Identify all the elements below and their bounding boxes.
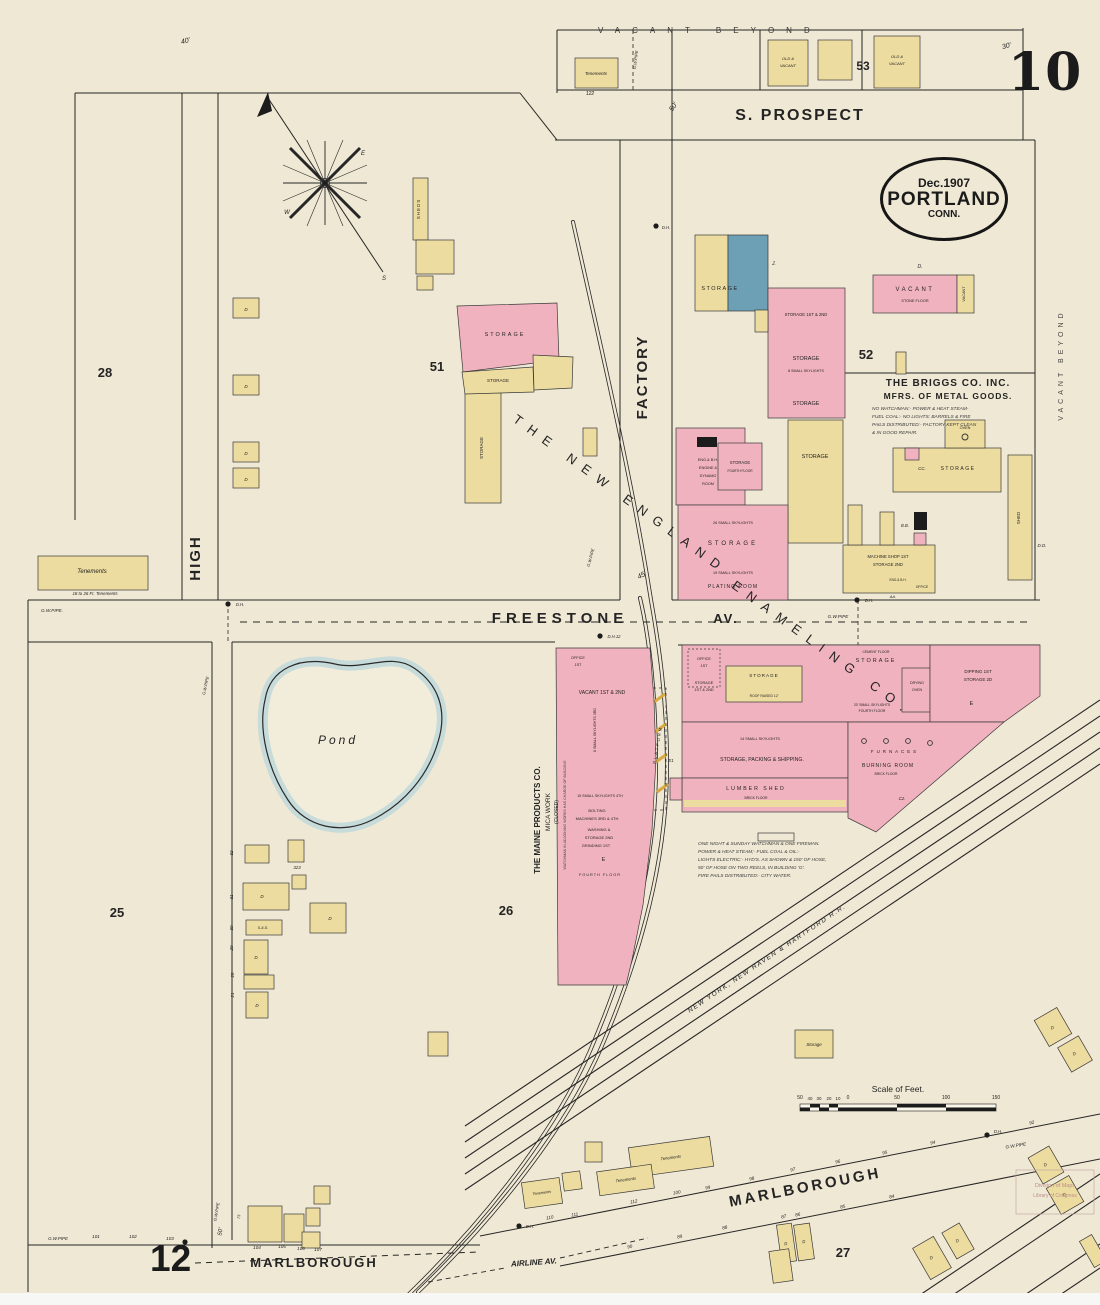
map-label: OFFICE (697, 657, 711, 661)
map-label: G.W.PIPE (828, 614, 850, 619)
company-name: THE MAINE PRODUCTS CO. (533, 766, 542, 874)
building (670, 778, 682, 800)
map-label: OVEN (912, 688, 923, 692)
sheet-number: 10 (1008, 42, 1082, 103)
map-label: ENG.& B.H. (698, 458, 718, 462)
map-label: 105 (278, 1244, 286, 1249)
building (838, 1108, 848, 1112)
hydrant-dot (516, 1223, 521, 1228)
library-stamp-line: Division of Maps (1035, 1183, 1076, 1189)
library-stamp-line: Library of Congress (1033, 1193, 1077, 1199)
map-label: 101 (92, 1234, 100, 1239)
map-label: STORAGE (802, 454, 829, 460)
map-label: STORAGE, PACKING & SHIPPING. (720, 757, 804, 763)
map-label: VACANT (896, 287, 935, 293)
building (288, 840, 304, 862)
block-number: 51 (430, 359, 444, 374)
map-label: STORAGE 2ND (873, 562, 903, 567)
hydrant-dot (323, 181, 326, 184)
map-label: 1ST (701, 664, 709, 668)
building (848, 505, 862, 545)
block-number: 52 (859, 347, 873, 362)
map-label: WATCHMAN IN ADJOINING WORKS HAS CHARGE O… (563, 760, 567, 869)
map-label: DIPPING 1ST (964, 669, 992, 674)
building (897, 1104, 946, 1108)
building (873, 275, 957, 313)
map-label: SHEDS (416, 199, 421, 220)
building (848, 1108, 897, 1112)
map-label: STORAGE (856, 658, 897, 664)
map-label: 21 (230, 992, 235, 998)
map-label: J. (771, 261, 776, 267)
map-label: STONE FLOOR (901, 299, 928, 303)
building (697, 437, 717, 447)
map-label: NO WATCHMAN:- POWER & HEAT STEAM- (872, 406, 969, 412)
building (905, 448, 919, 460)
map-label: CC. (918, 466, 926, 471)
map-label: ENGINE & (699, 466, 718, 470)
building (306, 1208, 320, 1226)
street-marlborough-west: MARLBOROUGH (250, 1255, 377, 1270)
publisher-stamp: Dec.1907 PORTLAND CONN. (880, 157, 1008, 241)
adjacent-sheet-number: 12 (150, 1238, 191, 1280)
map-label: LIGHTS ELECTRIC:- HYD'S. AS SHOWN & 150'… (698, 857, 826, 863)
map-label: STORAGE (487, 378, 509, 383)
map-label: 10 (836, 1096, 841, 1101)
building (914, 512, 927, 530)
map-label: 150 (992, 1095, 1001, 1101)
building (755, 310, 768, 332)
sanborn-map-sheet: S. PROSPECTFACTORYHIGHFREESTONEAV.MARLBO… (0, 0, 1100, 1305)
map-label: D. (918, 264, 923, 270)
map-label: D.H. (865, 598, 873, 603)
map-label: OVEN (960, 426, 971, 430)
pond-label: Pond (318, 733, 358, 747)
map-label: VACANT (962, 286, 966, 302)
map-label: STORAGE (695, 681, 714, 685)
map-label: 102 (129, 1234, 137, 1239)
building (829, 1104, 838, 1108)
map-label: ONE NIGHT & SUNDAY WATCHMAN & ONE FIREMA… (698, 841, 820, 847)
map-label: 323 (293, 865, 301, 870)
map-label: 20' SMALL SKYLIGHTS (854, 703, 891, 707)
map-label: 29 (229, 945, 234, 951)
building (243, 883, 289, 910)
map-label: 26 SMALL SKYLIGHTS (713, 521, 753, 525)
map-label: D.H. (662, 225, 670, 230)
map-label: 122 (586, 91, 595, 97)
map-label: CEMENT FLOOR (863, 650, 890, 654)
building (718, 443, 762, 490)
building (880, 512, 894, 545)
map-label: OLD & (891, 54, 903, 59)
map-label: SHED (1016, 511, 1021, 524)
map-label: E (602, 857, 606, 863)
map-label: 50 (894, 1095, 900, 1101)
building (428, 1032, 448, 1056)
map-label: FUEL COAL:- NO LIGHTS: BARRELS & FIRE (872, 414, 971, 420)
map-label: D.H. (994, 1129, 1002, 1134)
building (682, 722, 848, 778)
map-label: STORAGE 2ND (585, 835, 614, 840)
street-s-prospect: S. PROSPECT (735, 107, 865, 124)
block-number: 27 (836, 1245, 850, 1260)
building (245, 845, 269, 863)
map-label: ENG.& B.H. (889, 578, 906, 582)
map-label: Tenements (77, 569, 106, 575)
map-label: BRICK FLOOR (875, 772, 899, 776)
map-label: D.H. (236, 602, 244, 607)
stamp-city: PORTLAND (887, 190, 1001, 210)
building (684, 800, 846, 807)
map-label: BURNING ROOM (862, 763, 914, 769)
map-label: 104 (253, 1245, 261, 1250)
block-number: 28 (98, 365, 112, 380)
map-label: VACANT 1ST & 2ND (579, 690, 626, 696)
map-label: 8 SMALL SKYLIGHTS 3RD (593, 708, 597, 752)
map-label: BRICK FLOOR (745, 796, 769, 800)
map-label: 40 (808, 1096, 813, 1101)
compass-south: S (382, 276, 386, 282)
map-label: BOLTING (588, 808, 605, 813)
building (818, 40, 852, 80)
map-label: 28 (230, 972, 235, 978)
map-label: 30 (229, 925, 234, 930)
map-label: 8 SMALL SKYLIGHTS (788, 369, 824, 373)
building (810, 1104, 820, 1108)
map-label: DRYING (910, 681, 924, 685)
map-label: STORAGE (941, 466, 976, 472)
map-label: VACANT BEYOND (598, 26, 822, 35)
map-label: & IN GOOD REPAIR. (872, 430, 918, 436)
map-label: 30 (817, 1096, 822, 1101)
map-label: 18 to 26 Fr. Tenements (72, 591, 118, 596)
street-freestone: FREESTONE (492, 610, 628, 627)
street-freestone-av: AV. (713, 611, 739, 626)
map-label: C2. (899, 796, 906, 801)
building (788, 420, 843, 543)
map-label: D.D. (1038, 543, 1047, 548)
building (284, 1214, 304, 1242)
map-label: FOURTH FLOOR (727, 469, 753, 473)
map-label: MICA WORK (545, 792, 552, 831)
map-label: STORAGE (730, 460, 751, 465)
map-label: LUMBER SHED (726, 786, 785, 792)
building (769, 1249, 793, 1283)
map-label: STORAGE (701, 286, 738, 292)
map-label: 1ST (575, 663, 583, 667)
map-label: 106 (297, 1246, 305, 1251)
map-label: STORAGE 2D (964, 677, 992, 682)
building (768, 288, 845, 418)
hydrant-dot (984, 1132, 989, 1137)
map-label: ROOM (702, 482, 714, 486)
scale-title: Scale of Feet. (872, 1084, 924, 1094)
map-label: MACHINE SHOP 1ST (867, 554, 909, 559)
street-high: HIGH (187, 535, 204, 581)
building (583, 428, 597, 456)
hydrant-dot (653, 223, 658, 228)
stamp-state: CONN. (928, 210, 960, 221)
map-label: STORAGE (749, 673, 778, 678)
building (946, 1108, 996, 1112)
map-label: WASHING & (588, 827, 611, 832)
map-label: 32 (229, 850, 234, 855)
map-label: STORAGE (485, 332, 526, 338)
map-label: S.& D. (258, 926, 268, 930)
building (914, 533, 926, 545)
map-label: PLATING ROOM (708, 584, 758, 590)
map-label: STORAGE (793, 356, 820, 362)
map-label: POWER & HEAT STEAM;- FUEL COAL & OIL:- (698, 849, 800, 855)
map-label: OLD & (782, 56, 794, 61)
map-label: 19 SMALL SKYLIGHTS (713, 571, 753, 575)
map-label: 50 (797, 1095, 803, 1101)
map-label: 20 (827, 1096, 832, 1101)
hydrant-dot (854, 597, 859, 602)
map-label: 31 (229, 894, 234, 899)
map-label: VACANT (889, 61, 906, 66)
block-number: 25 (110, 905, 124, 920)
company-name: THE BRIGGS CO. INC. (886, 378, 1011, 389)
building (562, 1171, 582, 1191)
map-label: 107 (314, 1247, 322, 1252)
map-label: OFFICE (571, 656, 585, 660)
map-label: GRINDING 1ST (582, 843, 611, 848)
block-number: 53 (856, 59, 870, 73)
block-number: 26 (499, 903, 513, 918)
map-label: (CLOSED) (554, 800, 560, 824)
building (416, 240, 454, 274)
building (728, 235, 768, 311)
map-label: 50' OF HOSE ON TWO REELS, IN BUILDING 'G… (698, 865, 805, 871)
map-label: 14 SMALL SKYLIGHTS (740, 737, 780, 741)
hydrant-dot (225, 601, 230, 606)
map-label: VACANT (780, 63, 797, 68)
map-label: MACHINES 3RD & 4TH (576, 816, 619, 821)
building (819, 1108, 829, 1112)
building (417, 276, 433, 290)
map-label: FIRE PAILS DISTRIBUTED:- CITY WATER. (698, 873, 791, 879)
building (896, 352, 906, 374)
map-label: OFFICE (916, 585, 929, 589)
map-label: 1ST & 2ND (694, 688, 713, 692)
building (533, 355, 573, 390)
building (585, 1142, 602, 1162)
map-label: G.W.PIPE (48, 1236, 68, 1241)
map-label: G.W.PIPE. (41, 608, 63, 613)
scan-edge (0, 1293, 1100, 1305)
map-label: E (970, 701, 974, 707)
building (695, 235, 728, 311)
map-label: STORAGE (708, 541, 758, 547)
map-label: ROOF RAISED 12' (750, 694, 779, 698)
map-label: VACANT BEYOND (1058, 309, 1065, 420)
building (314, 1186, 330, 1204)
hydrant-dot (597, 633, 602, 638)
map-label: Storage (806, 1042, 822, 1047)
building (244, 975, 274, 989)
map-label: FURNACES (871, 749, 919, 754)
street-factory: FACTORY (634, 335, 651, 420)
map-label: E1 (668, 758, 674, 763)
map-label: 100 (942, 1095, 951, 1101)
building (682, 645, 930, 722)
building (248, 1206, 282, 1242)
building (800, 1108, 810, 1112)
map-label: STORAGE (479, 437, 484, 459)
map-label: D.H.12 (607, 634, 621, 639)
map-label: 15 SMALL SKYLIGHTS 4TH (577, 794, 623, 798)
map-label: 0 (847, 1095, 850, 1101)
building (292, 875, 306, 889)
map-label: DYNAMO (700, 474, 717, 478)
map-label: Tenements (585, 71, 608, 76)
map-label: STORAGE 1ST & 2ND (785, 312, 828, 317)
map-label: AA. (889, 594, 896, 599)
map-label: STORAGE (793, 401, 820, 407)
map-label: B.B. (901, 523, 909, 528)
map-label: MFRS. OF METAL GOODS. (884, 391, 1013, 401)
map-label: FOURTH FLOOR (859, 709, 886, 713)
map-label: FOURTH FLOOR (579, 873, 621, 877)
map-label: D.H. (526, 1224, 534, 1229)
